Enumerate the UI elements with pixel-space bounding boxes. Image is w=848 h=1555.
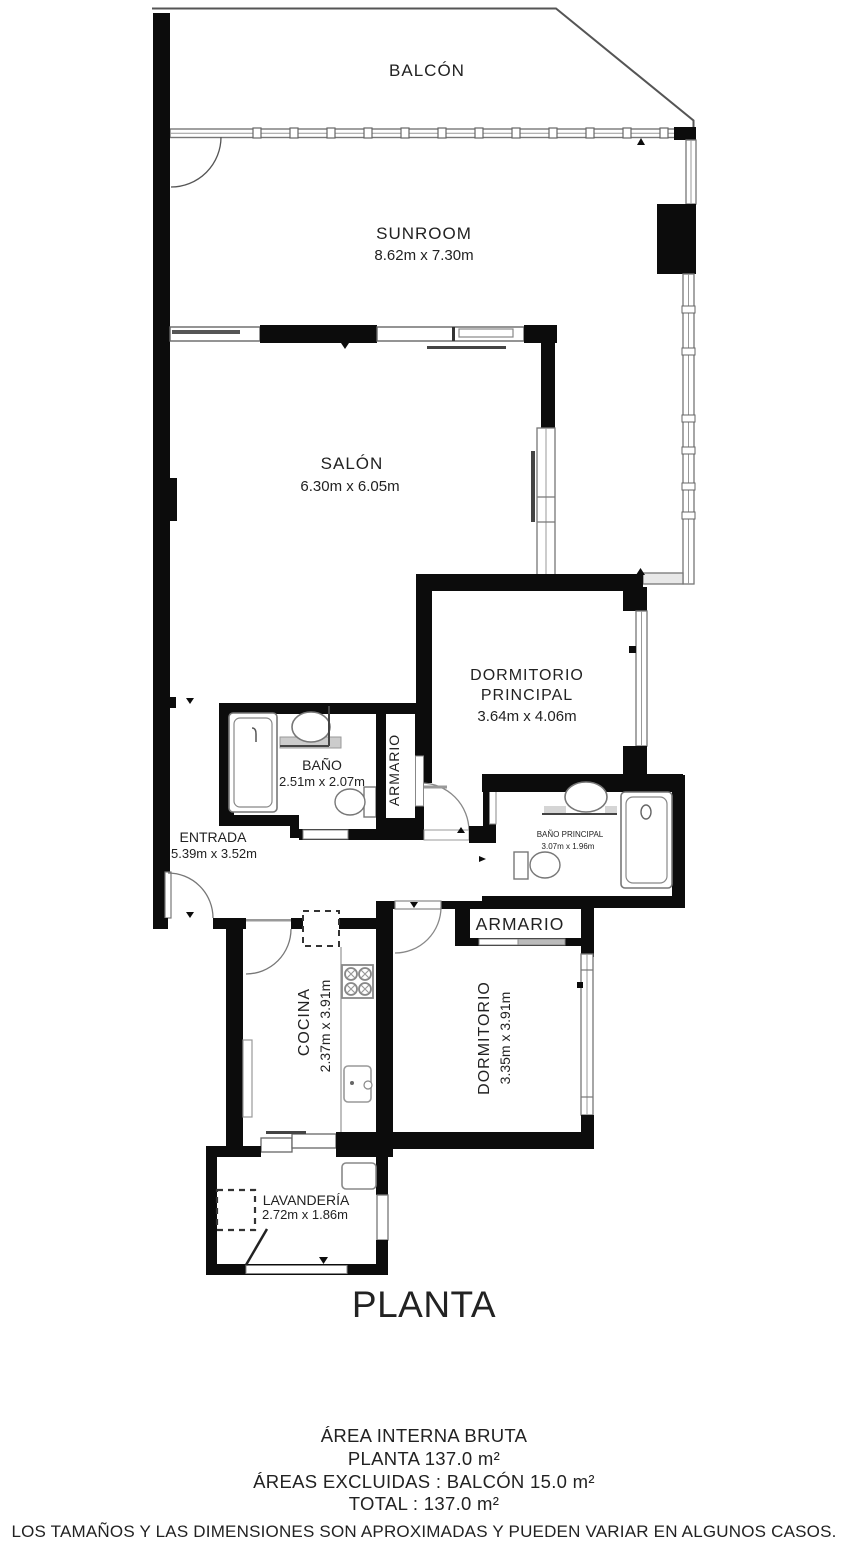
svg-text:ARMARIO: ARMARIO bbox=[476, 914, 565, 934]
svg-text:COCINA: COCINA bbox=[296, 988, 313, 1056]
svg-text:ARMARIO: ARMARIO bbox=[386, 734, 402, 806]
svg-text:ENTRADA: ENTRADA bbox=[180, 829, 248, 845]
svg-text:DORMITORIO: DORMITORIO bbox=[476, 981, 493, 1095]
svg-text:BALCÓN: BALCÓN bbox=[389, 61, 465, 80]
svg-text:BAÑO: BAÑO bbox=[302, 757, 342, 773]
svg-text:2.51m x 2.07m: 2.51m x 2.07m bbox=[279, 774, 365, 789]
svg-text:2.37m x 3.91m: 2.37m x 3.91m bbox=[317, 980, 333, 1073]
svg-text:SUNROOM: SUNROOM bbox=[376, 224, 472, 243]
svg-text:8.62m x 7.30m: 8.62m x 7.30m bbox=[374, 247, 473, 264]
svg-text:LAVANDERÍA: LAVANDERÍA bbox=[263, 1192, 350, 1208]
svg-text:DORMITORIO: DORMITORIO bbox=[470, 667, 584, 684]
svg-text:ÁREA INTERNA BRUTA: ÁREA INTERNA BRUTA bbox=[321, 1425, 528, 1446]
svg-text:2.72m x 1.86m: 2.72m x 1.86m bbox=[262, 1207, 348, 1222]
svg-text:5.39m x 3.52m: 5.39m x 3.52m bbox=[171, 846, 257, 861]
svg-text:3.07m x 1.96m: 3.07m x 1.96m bbox=[542, 842, 595, 851]
svg-text:TOTAL : 137.0 m²: TOTAL : 137.0 m² bbox=[349, 1493, 499, 1514]
svg-text:3.64m x 4.06m: 3.64m x 4.06m bbox=[477, 708, 576, 725]
svg-text:PLANTA: PLANTA bbox=[352, 1284, 496, 1325]
svg-text:PLANTA 137.0 m²: PLANTA 137.0 m² bbox=[348, 1448, 500, 1469]
svg-text:SALÓN: SALÓN bbox=[321, 454, 384, 473]
svg-text:BAÑO PRINCIPAL: BAÑO PRINCIPAL bbox=[537, 830, 604, 839]
svg-text:ÁREAS EXCLUIDAS : BALCÓN 15.0: ÁREAS EXCLUIDAS : BALCÓN 15.0 m² bbox=[253, 1471, 595, 1492]
svg-text:3.35m x 3.91m: 3.35m x 3.91m bbox=[497, 992, 513, 1085]
svg-text:PRINCIPAL: PRINCIPAL bbox=[481, 687, 573, 704]
svg-text:6.30m x 6.05m: 6.30m x 6.05m bbox=[300, 478, 399, 495]
svg-text:LOS TAMAÑOS Y LAS DIMENSIONES: LOS TAMAÑOS Y LAS DIMENSIONES SON APROXI… bbox=[11, 1522, 836, 1541]
